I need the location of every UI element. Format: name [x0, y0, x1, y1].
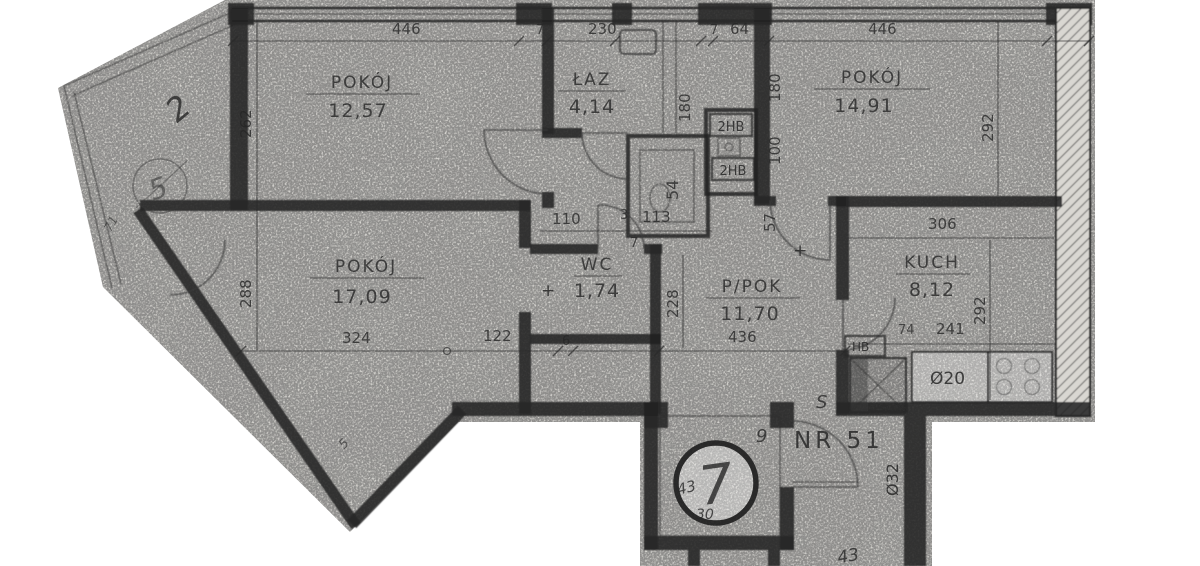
wall-left [230, 8, 248, 210]
dim-right-292b: 292 [971, 296, 989, 325]
dim-kitchen-241: 241 [936, 320, 965, 338]
dim-bottom-6: 6 [562, 334, 570, 349]
vestibule-extension [768, 550, 780, 566]
dim-top-446a: 446 [392, 20, 421, 38]
floorplan-svg: 446 7 230 7 64 446 262 288 110 3 113 7 1… [0, 0, 1200, 566]
wall-stub [754, 196, 776, 206]
hand-note-30: 30 [696, 507, 714, 523]
room-label-wc: WC [581, 255, 614, 275]
level-mark-1: + [541, 281, 555, 301]
dim-bottom-324: 324 [342, 329, 371, 347]
pipe-diameter-label: Ø32 [883, 463, 902, 496]
vestibule-right-wall [780, 487, 794, 550]
stove-unit [988, 352, 1052, 402]
wc-east-wall [650, 244, 661, 344]
kitchen-west-wall [836, 196, 849, 300]
room-label-pokoj-3: POKÓJ [335, 255, 397, 277]
vestibule-pier [644, 402, 668, 428]
wc-north-wall [530, 244, 598, 254]
room-label-laz: ŁAZ [572, 70, 612, 90]
dim-riser-100: 100 [766, 136, 784, 165]
exterior-wall-right [1056, 8, 1090, 416]
vestibule-bottom-wall [644, 536, 794, 550]
dim-top-7b: 7 [710, 23, 718, 38]
dim-riser-180a: 180 [676, 93, 694, 122]
apartment-number-label: NR 51 [794, 428, 884, 454]
dim-mid-3: 3 [620, 208, 628, 223]
dim-top-230: 230 [588, 20, 617, 38]
hand-note-s: S [816, 392, 827, 413]
dim-vert-228: 228 [664, 289, 682, 318]
room-area-pokoj-1: 12,57 [328, 100, 387, 122]
bottom-wall [452, 402, 658, 416]
wall-vertical [519, 312, 531, 414]
wall-room-separator [140, 200, 530, 211]
room-area-kuch: 8,12 [909, 279, 955, 301]
dim-riser-57: 57 [761, 213, 779, 232]
room-area-ppok: 11,70 [720, 303, 779, 325]
dim-kitchen-74: 74 [898, 323, 915, 338]
room-area-pokoj-3: 17,09 [332, 286, 391, 308]
bottom-hand-43: 43 [836, 545, 861, 566]
dim-top-446b: 446 [868, 20, 897, 38]
dim-left-262: 262 [237, 109, 255, 138]
dim-top-7a: 7 [536, 23, 544, 38]
dim-mid-113: 113 [642, 208, 671, 226]
vestibule-pier [770, 402, 794, 428]
kitchen-north-wall [836, 196, 1062, 207]
shaft-label-2hb-1: 2HB [718, 120, 745, 135]
dim-bottom-436: 436 [728, 328, 757, 346]
dim-mid-110: 110 [552, 210, 581, 228]
hb-label: HB [852, 340, 869, 354]
kitchen-west-wall [836, 350, 849, 414]
shaft-label-2hb-2: 2HB [720, 164, 747, 179]
room-area-laz: 4,14 [569, 96, 615, 118]
wc-south-wall [530, 334, 661, 344]
shaft-dark-fill [850, 358, 868, 412]
dim-top-64: 64 [730, 20, 749, 38]
hand-note-9: 9 [756, 426, 767, 447]
vestibule-extension [688, 550, 700, 566]
room-label-pokoj-1: POKÓJ [331, 71, 393, 93]
sink-diameter-label: Ø20 [930, 369, 965, 389]
wall-vertical [519, 200, 531, 248]
level-mark-2: + [793, 241, 807, 261]
dim-bottom-122: 122 [483, 327, 512, 345]
dim-mid-7: 7 [630, 236, 638, 251]
room-area-wc: 1,74 [574, 280, 620, 302]
room-label-pokoj-2: POKÓJ [841, 66, 903, 88]
scanned-floorplan-page: 446 7 230 7 64 446 262 288 110 3 113 7 1… [0, 0, 1200, 566]
dim-shaft-54: 54 [663, 180, 682, 200]
dim-riser-180b: 180 [766, 73, 784, 102]
room-area-pokoj-2: 14,91 [834, 95, 893, 117]
dim-left-288: 288 [237, 279, 255, 308]
room-label-ppok: P/POK [722, 277, 783, 297]
lower-right-wall [904, 416, 926, 566]
dim-right-292a: 292 [979, 113, 997, 142]
room-label-kuch: KUCH [904, 253, 960, 273]
dim-right-306: 306 [928, 215, 957, 233]
